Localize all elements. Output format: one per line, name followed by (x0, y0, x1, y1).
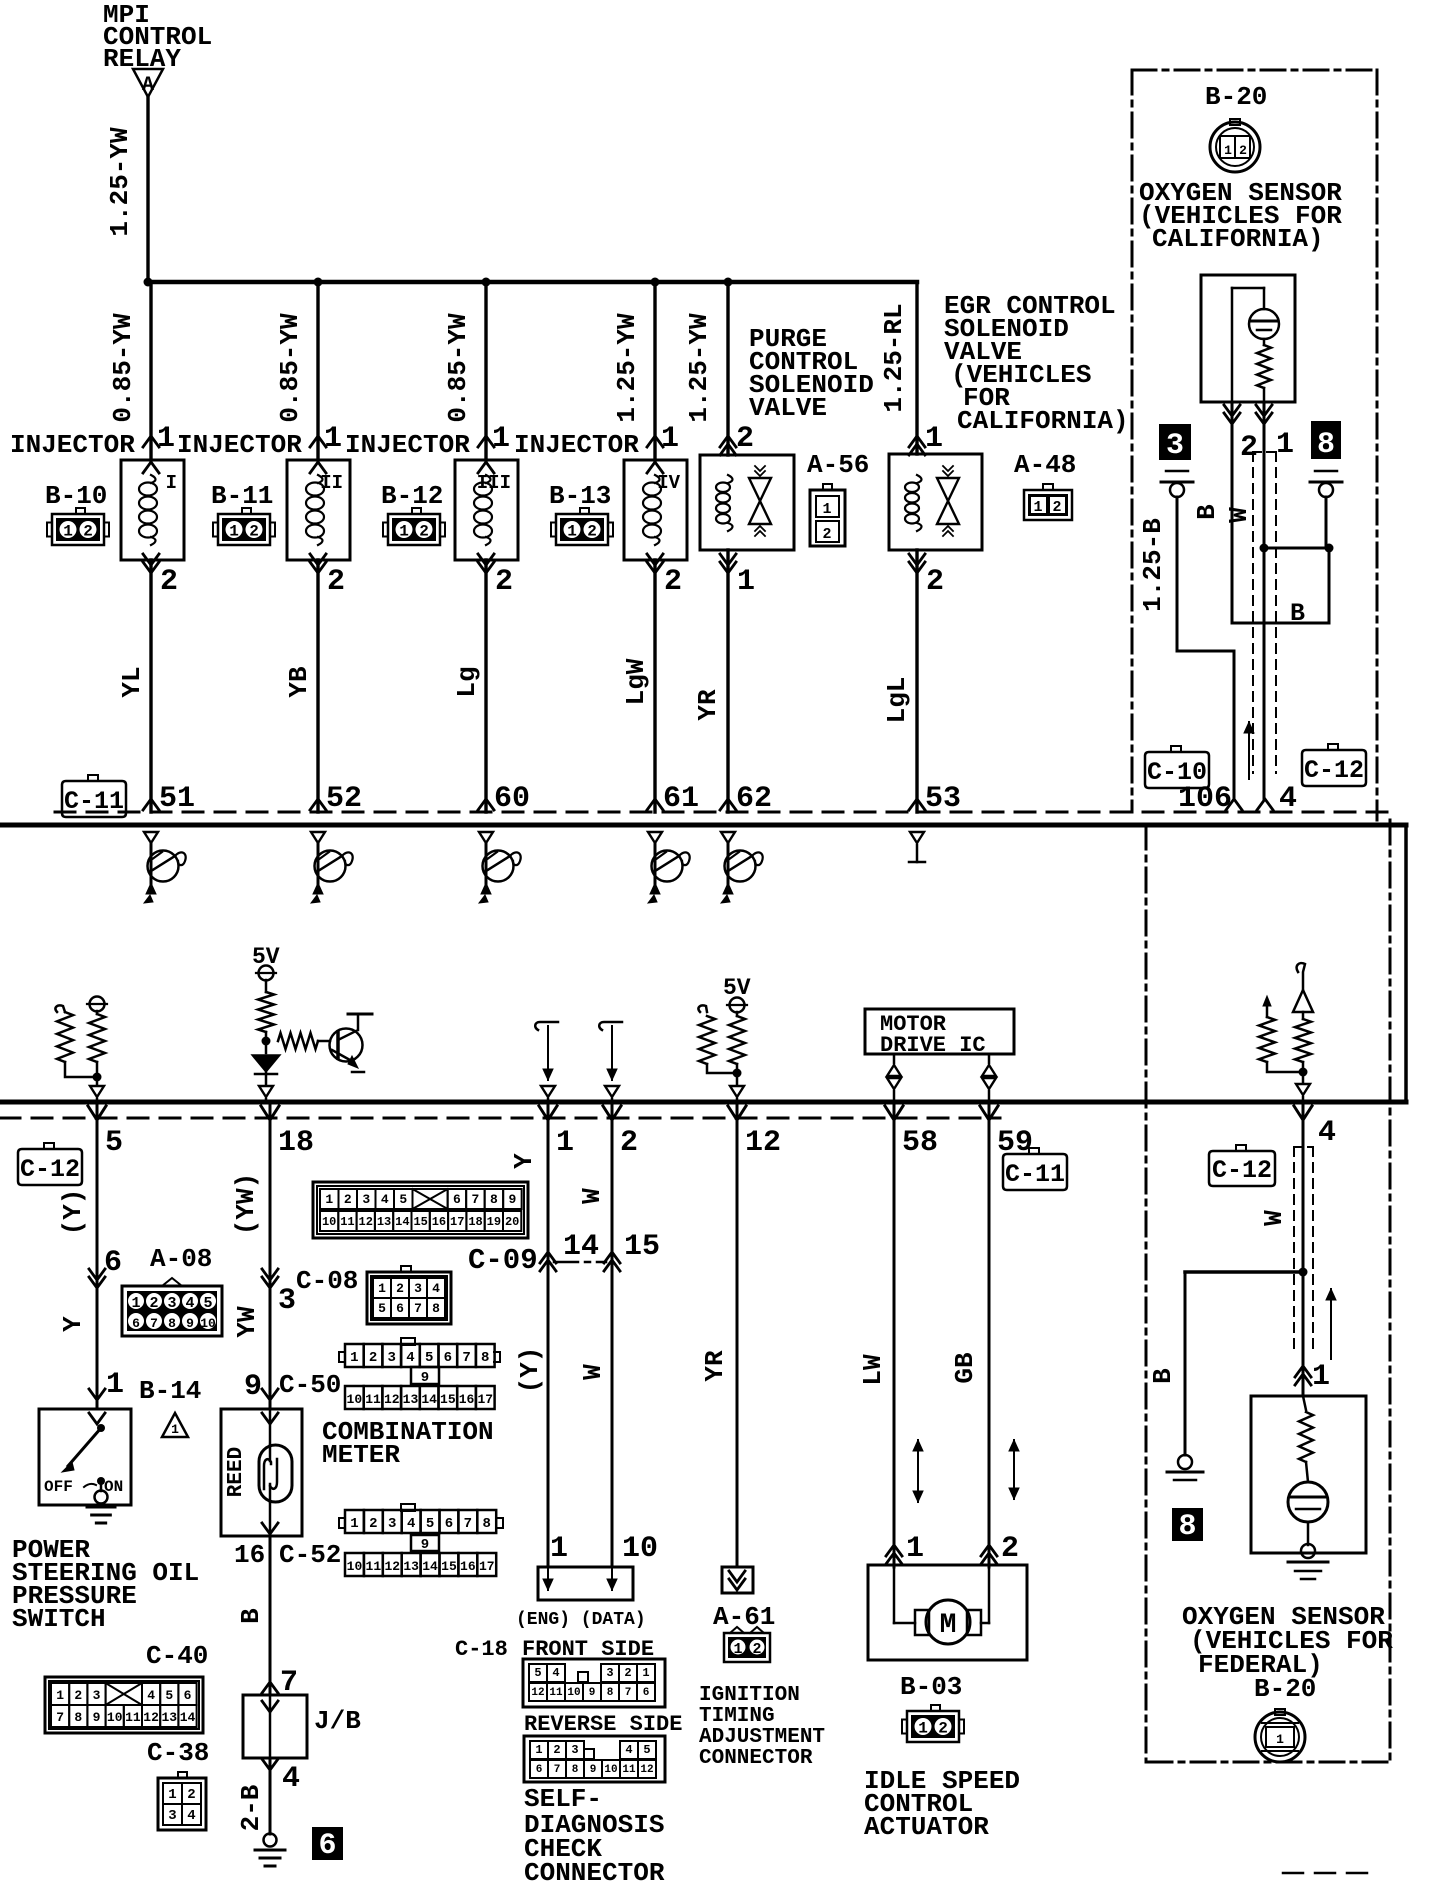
svg-text:7: 7 (554, 1764, 561, 1776)
svg-text:5: 5 (534, 1666, 541, 1680)
svg-text:1: 1 (1312, 1360, 1330, 1394)
svg-text:7: 7 (56, 1710, 64, 1725)
svg-text:6: 6 (643, 1687, 650, 1699)
svg-text:1: 1 (1033, 499, 1042, 516)
svg-text:61: 61 (663, 782, 699, 816)
svg-text:2: 2 (1001, 1532, 1019, 1566)
svg-text:LW: LW (858, 1354, 888, 1386)
svg-text:2: 2 (187, 1787, 195, 1803)
svg-text:1: 1 (399, 523, 409, 541)
svg-text:15: 15 (441, 1559, 457, 1574)
svg-text:5: 5 (425, 1350, 433, 1366)
svg-text:2: 2 (149, 1295, 158, 1312)
svg-text:5: 5 (203, 1295, 212, 1312)
svg-text:14: 14 (180, 1710, 196, 1725)
svg-text:B: B (1290, 599, 1305, 628)
svg-text:9: 9 (421, 1537, 429, 1553)
svg-text:6: 6 (132, 1316, 140, 1331)
svg-text:Lg: Lg (452, 666, 482, 697)
svg-text:B: B (1192, 504, 1222, 520)
svg-text:C-09: C-09 (468, 1244, 538, 1277)
svg-text:METER: METER (322, 1440, 400, 1470)
svg-text:13: 13 (377, 1215, 391, 1229)
svg-text:OFF: OFF (44, 1478, 73, 1496)
svg-text:1: 1 (535, 1743, 542, 1757)
svg-text:11: 11 (365, 1392, 381, 1407)
svg-text:51: 51 (159, 782, 195, 816)
svg-text:8: 8 (432, 1301, 440, 1316)
svg-text:10: 10 (347, 1392, 363, 1407)
svg-text:2: 2 (1239, 143, 1247, 158)
svg-text:3: 3 (606, 1666, 613, 1680)
svg-text:B-20: B-20 (1254, 1674, 1316, 1704)
svg-text:ADJUSTMENT: ADJUSTMENT (699, 1726, 825, 1749)
svg-text:7: 7 (462, 1350, 470, 1366)
svg-text:1: 1 (925, 422, 943, 456)
svg-text:2: 2 (822, 526, 831, 543)
svg-text:1: 1 (492, 422, 510, 456)
svg-text:17: 17 (450, 1215, 464, 1229)
svg-text:3: 3 (571, 1743, 578, 1757)
svg-text:3: 3 (388, 1516, 396, 1532)
svg-text:4: 4 (381, 1192, 389, 1207)
svg-text:10: 10 (107, 1710, 123, 1725)
svg-text:B-10: B-10 (45, 481, 107, 511)
svg-text:C-12: C-12 (1304, 756, 1364, 785)
svg-text:B-03: B-03 (900, 1672, 962, 1702)
svg-text:6: 6 (318, 1829, 336, 1863)
svg-text:1: 1 (1224, 143, 1232, 158)
svg-text:8: 8 (607, 1687, 614, 1699)
svg-text:DRIVE IC: DRIVE IC (880, 1033, 986, 1058)
svg-text:12: 12 (359, 1215, 373, 1229)
svg-text:10: 10 (347, 1559, 363, 1574)
svg-text:7: 7 (471, 1192, 479, 1207)
svg-text:11: 11 (340, 1215, 354, 1229)
svg-text:2: 2 (83, 523, 93, 541)
svg-text:B-11: B-11 (211, 481, 273, 511)
svg-text:6: 6 (453, 1192, 461, 1207)
svg-text:4: 4 (185, 1295, 194, 1312)
svg-text:13: 13 (403, 1559, 419, 1574)
svg-text:1: 1 (131, 1295, 140, 1312)
svg-text:2: 2 (327, 565, 345, 599)
svg-text:9: 9 (590, 1764, 597, 1776)
svg-text:C-50: C-50 (279, 1370, 341, 1400)
svg-text:11: 11 (549, 1687, 563, 1699)
svg-text:4: 4 (432, 1281, 440, 1296)
svg-text:10: 10 (622, 1532, 658, 1566)
svg-text:B-20: B-20 (1205, 82, 1267, 112)
svg-text:2: 2 (396, 1281, 404, 1296)
svg-text:1: 1 (106, 1368, 124, 1402)
svg-text:1: 1 (378, 1281, 386, 1296)
svg-text:19: 19 (487, 1215, 501, 1229)
svg-text:18: 18 (468, 1215, 482, 1229)
svg-text:10: 10 (322, 1215, 336, 1229)
svg-text:INJECTOR: INJECTOR (10, 430, 135, 460)
svg-text:1: 1 (63, 523, 73, 541)
svg-text:B-14: B-14 (139, 1376, 201, 1406)
svg-text:2: 2 (344, 1192, 352, 1207)
svg-text:(ENG) (DATA): (ENG) (DATA) (516, 1610, 646, 1630)
svg-text:C-11: C-11 (1005, 1160, 1065, 1189)
svg-text:5: 5 (105, 1126, 123, 1160)
svg-text:C-08: C-08 (296, 1266, 358, 1296)
svg-text:53: 53 (925, 782, 961, 816)
svg-text:C-12: C-12 (20, 1155, 80, 1184)
svg-text:1: 1 (906, 1532, 924, 1566)
svg-text:62: 62 (736, 782, 772, 816)
svg-text:C-40: C-40 (146, 1641, 208, 1671)
svg-text:1: 1 (325, 1192, 333, 1207)
svg-text:9: 9 (244, 1370, 262, 1404)
svg-text:W: W (577, 1188, 607, 1204)
svg-text:1: 1 (1276, 428, 1294, 462)
svg-text:J/B: J/B (314, 1706, 361, 1736)
svg-text:LgW: LgW (621, 658, 651, 705)
svg-text:IV: IV (657, 472, 680, 494)
svg-text:60: 60 (494, 782, 530, 816)
svg-text:16: 16 (459, 1392, 475, 1407)
svg-text:7: 7 (464, 1516, 472, 1532)
svg-text:52: 52 (326, 782, 362, 816)
svg-text:REVERSE SIDE: REVERSE SIDE (524, 1712, 682, 1737)
svg-text:58: 58 (902, 1126, 938, 1160)
svg-text:1: 1 (350, 1516, 358, 1532)
svg-text:10: 10 (567, 1687, 580, 1699)
svg-text:SWITCH: SWITCH (12, 1604, 106, 1634)
svg-text:M: M (940, 1610, 957, 1641)
svg-text:8: 8 (74, 1710, 82, 1725)
svg-text:14: 14 (395, 1215, 409, 1229)
svg-text:12: 12 (384, 1392, 400, 1407)
svg-text:INJECTOR: INJECTOR (345, 430, 470, 460)
svg-text:1: 1 (171, 1422, 179, 1437)
svg-text:2: 2 (369, 1350, 377, 1366)
svg-text:C-38: C-38 (147, 1738, 209, 1768)
svg-text:11: 11 (366, 1559, 382, 1574)
svg-text:LgL: LgL (882, 677, 912, 724)
svg-text:IGNITION: IGNITION (699, 1684, 800, 1707)
svg-text:4: 4 (1318, 1116, 1336, 1150)
svg-text:(Y): (Y) (58, 1189, 88, 1236)
svg-text:4: 4 (147, 1688, 155, 1703)
svg-text:8: 8 (481, 1350, 489, 1366)
svg-text:10: 10 (604, 1764, 617, 1776)
svg-text:1.25-YW: 1.25-YW (105, 127, 135, 237)
svg-text:III: III (477, 472, 511, 494)
svg-text:B-13: B-13 (549, 481, 611, 511)
svg-text:2: 2 (752, 1641, 761, 1658)
svg-text:16: 16 (432, 1215, 446, 1229)
svg-text:W: W (1224, 507, 1254, 523)
svg-text:8: 8 (483, 1516, 491, 1532)
svg-text:C-18: C-18 (455, 1637, 508, 1662)
svg-text:11: 11 (125, 1710, 141, 1725)
svg-text:1: 1 (350, 1350, 358, 1366)
svg-text:W: W (1259, 1210, 1289, 1226)
svg-text:1: 1 (918, 1720, 928, 1738)
svg-text:(YW): (YW) (231, 1173, 261, 1235)
svg-text:CALIFORNIA): CALIFORNIA) (957, 406, 1129, 436)
svg-text:2-B: 2-B (236, 1784, 266, 1831)
svg-text:1: 1 (733, 1641, 742, 1658)
svg-text:13: 13 (161, 1710, 177, 1725)
svg-text:C-52: C-52 (279, 1540, 341, 1570)
svg-text:15: 15 (440, 1392, 456, 1407)
svg-text:Y: Y (58, 1316, 88, 1332)
svg-text:12: 12 (143, 1710, 159, 1725)
svg-text:7: 7 (625, 1687, 632, 1699)
svg-text:1: 1 (822, 501, 831, 518)
svg-text:6: 6 (104, 1246, 122, 1280)
svg-text:A-48: A-48 (1014, 450, 1076, 480)
svg-text:2: 2 (736, 422, 754, 456)
svg-text:2: 2 (419, 523, 429, 541)
svg-text:1: 1 (157, 422, 175, 456)
svg-text:8: 8 (1178, 1510, 1196, 1544)
svg-text:Y: Y (509, 1153, 539, 1169)
svg-text:B: B (1148, 1368, 1178, 1384)
svg-text:2: 2 (369, 1516, 377, 1532)
svg-text:A-08: A-08 (150, 1244, 212, 1274)
svg-text:CONNECTOR: CONNECTOR (524, 1858, 665, 1884)
svg-text:5: 5 (399, 1192, 407, 1207)
svg-text:7: 7 (150, 1316, 158, 1331)
svg-text:YW: YW (232, 1306, 262, 1338)
svg-text:0.85-YW: 0.85-YW (275, 313, 305, 423)
svg-text:2: 2 (1052, 499, 1061, 516)
svg-text:B: B (236, 1608, 266, 1624)
svg-text:5: 5 (165, 1688, 173, 1703)
svg-text:5: 5 (378, 1301, 386, 1316)
svg-text:2: 2 (495, 565, 513, 599)
svg-text:YL: YL (117, 666, 147, 697)
svg-text:15: 15 (624, 1230, 660, 1264)
svg-text:8: 8 (490, 1192, 498, 1207)
svg-text:14: 14 (421, 1392, 437, 1407)
svg-text:2: 2 (926, 565, 944, 599)
svg-text:9: 9 (186, 1316, 194, 1331)
svg-text:2: 2 (1240, 431, 1258, 465)
svg-text:17: 17 (477, 1392, 493, 1407)
svg-text:B-12: B-12 (381, 481, 443, 511)
svg-text:6: 6 (536, 1764, 543, 1776)
svg-text:II: II (320, 472, 343, 494)
svg-text:10: 10 (200, 1316, 216, 1331)
svg-text:3: 3 (93, 1688, 101, 1703)
svg-text:I: I (166, 472, 177, 494)
svg-text:CALIFORNIA): CALIFORNIA) (1152, 224, 1324, 254)
svg-text:1: 1 (642, 1666, 649, 1680)
svg-text:2: 2 (587, 523, 597, 541)
svg-text:9: 9 (93, 1710, 101, 1725)
svg-text:9: 9 (508, 1192, 516, 1207)
svg-text:5: 5 (426, 1516, 434, 1532)
svg-text:1: 1 (324, 422, 342, 456)
svg-text:A-61: A-61 (713, 1602, 775, 1632)
svg-text:3: 3 (278, 1284, 296, 1318)
svg-text:18: 18 (278, 1126, 314, 1160)
svg-text:2: 2 (664, 565, 682, 599)
svg-text:VALVE: VALVE (749, 393, 827, 423)
svg-text:17: 17 (479, 1559, 495, 1574)
svg-text:3: 3 (167, 1295, 176, 1312)
svg-text:2: 2 (553, 1743, 560, 1757)
svg-text:11: 11 (622, 1764, 636, 1776)
svg-text:1.25-YW: 1.25-YW (684, 313, 714, 423)
svg-text:3: 3 (414, 1281, 422, 1296)
svg-text:1: 1 (229, 523, 239, 541)
svg-text:15: 15 (413, 1215, 427, 1229)
svg-text:13: 13 (403, 1392, 419, 1407)
svg-text:8: 8 (572, 1764, 579, 1776)
svg-text:6: 6 (444, 1350, 452, 1366)
svg-text:1: 1 (567, 523, 577, 541)
svg-text:12: 12 (640, 1764, 653, 1776)
svg-text:6: 6 (396, 1301, 404, 1316)
svg-text:1: 1 (556, 1126, 574, 1160)
svg-text:CONNECTOR: CONNECTOR (699, 1747, 813, 1770)
svg-text:1: 1 (661, 422, 679, 456)
svg-text:C-12: C-12 (1212, 1156, 1272, 1185)
svg-text:7: 7 (414, 1301, 422, 1316)
svg-text:5: 5 (643, 1743, 650, 1757)
svg-text:INJECTOR: INJECTOR (177, 430, 302, 460)
svg-text:0.85-YW: 0.85-YW (443, 313, 473, 423)
svg-text:TIMING: TIMING (699, 1705, 775, 1728)
svg-text:4: 4 (187, 1808, 195, 1824)
svg-text:12: 12 (531, 1687, 544, 1699)
svg-text:1.25-YW: 1.25-YW (612, 313, 642, 423)
svg-text:2: 2 (620, 1126, 638, 1160)
svg-text:14: 14 (563, 1230, 599, 1264)
svg-text:1: 1 (737, 565, 755, 599)
svg-text:20: 20 (505, 1215, 519, 1229)
svg-text:2: 2 (74, 1688, 82, 1703)
svg-text:2: 2 (249, 523, 259, 541)
svg-text:4: 4 (407, 1516, 415, 1532)
svg-text:GB: GB (950, 1352, 980, 1384)
svg-text:1: 1 (1276, 1732, 1284, 1747)
svg-text:A-56: A-56 (807, 450, 869, 480)
svg-text:4: 4 (1279, 782, 1297, 816)
svg-text:W: W (578, 1364, 608, 1380)
svg-text:A: A (142, 74, 154, 97)
svg-text:12: 12 (745, 1126, 781, 1160)
svg-text:4: 4 (625, 1743, 632, 1757)
svg-text:2: 2 (160, 565, 178, 599)
svg-text:8: 8 (1317, 428, 1335, 462)
svg-text:6: 6 (184, 1688, 192, 1703)
svg-text:14: 14 (422, 1559, 438, 1574)
svg-text:4: 4 (406, 1350, 414, 1366)
svg-text:0.85-YW: 0.85-YW (108, 313, 138, 423)
svg-text:3: 3 (388, 1350, 396, 1366)
svg-text:1.25-RL: 1.25-RL (879, 303, 909, 412)
svg-text:1: 1 (550, 1532, 568, 1566)
svg-text:9: 9 (589, 1687, 596, 1699)
svg-text:REED: REED (225, 1447, 248, 1497)
svg-text:3: 3 (168, 1808, 176, 1824)
svg-text:1: 1 (168, 1787, 176, 1803)
svg-text:1.25-B: 1.25-B (1138, 518, 1168, 612)
svg-text:4: 4 (552, 1666, 559, 1680)
svg-text:6: 6 (445, 1516, 453, 1532)
svg-text:YB: YB (284, 666, 314, 698)
svg-text:(Y): (Y) (515, 1347, 545, 1394)
svg-text:12: 12 (384, 1559, 400, 1574)
svg-text:3: 3 (362, 1192, 370, 1207)
svg-text:C-10: C-10 (1147, 758, 1207, 787)
svg-text:1: 1 (56, 1688, 64, 1703)
svg-text:3: 3 (1166, 429, 1184, 463)
svg-text:4: 4 (282, 1762, 300, 1796)
svg-text:8: 8 (168, 1316, 176, 1331)
svg-text:ACTUATOR: ACTUATOR (864, 1812, 989, 1842)
svg-text:2: 2 (624, 1666, 631, 1680)
svg-text:INJECTOR: INJECTOR (514, 430, 639, 460)
svg-text:9: 9 (421, 1370, 429, 1386)
svg-text:2: 2 (938, 1720, 948, 1738)
svg-text:16: 16 (234, 1540, 265, 1570)
svg-text:YR: YR (700, 1350, 730, 1382)
svg-text:16: 16 (460, 1559, 476, 1574)
svg-text:YR: YR (693, 689, 723, 721)
